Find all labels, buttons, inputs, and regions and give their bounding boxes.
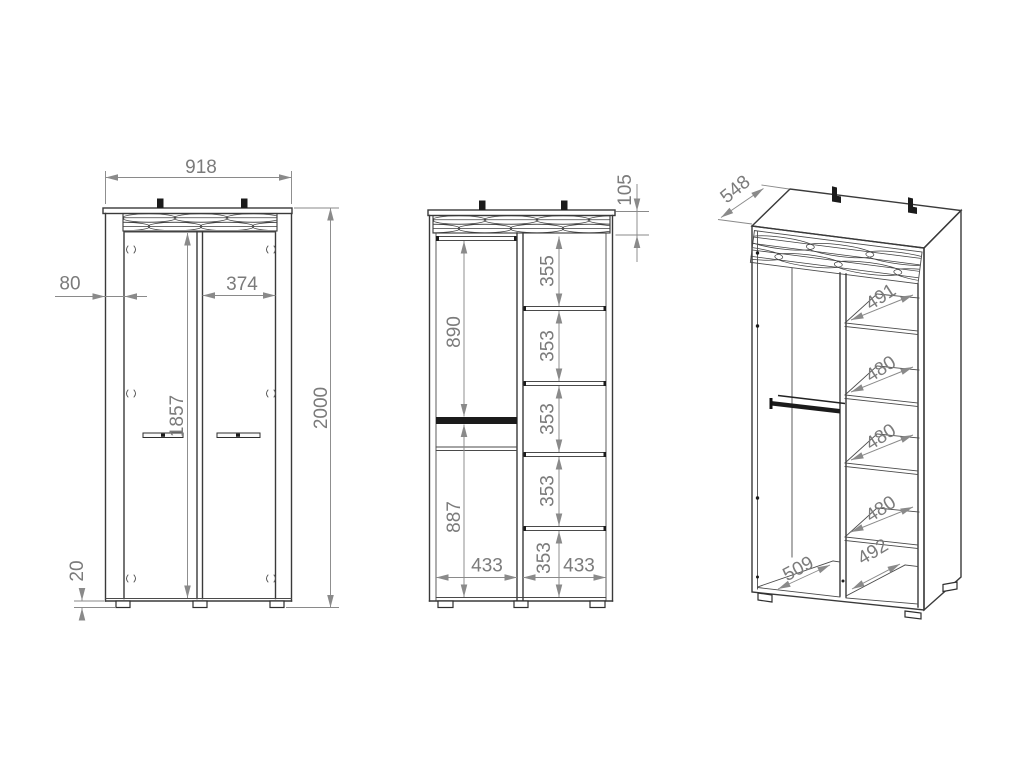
- dim-overall-height: 2000: [311, 387, 332, 429]
- wall-bracket-icon: [157, 199, 164, 209]
- dim-shelf-gap-1: 355: [538, 255, 559, 287]
- technical-drawing-page: 918 80 374 1857 2000 20: [0, 0, 1017, 763]
- wall-bracket-icon: [561, 201, 568, 211]
- plinth-foot: [193, 601, 207, 608]
- wall-bracket-icon: [479, 201, 486, 211]
- dim-door-width: 374: [226, 274, 258, 295]
- plinth-foot: [758, 593, 772, 602]
- dim-shelf-gap-5: 353: [534, 542, 555, 574]
- dim-hanging-section: 890: [444, 316, 465, 348]
- dim-door-height: 1857: [167, 395, 188, 437]
- door-handle-right: [217, 433, 260, 438]
- plinth-foot: [270, 601, 284, 608]
- shelf-pin: [842, 580, 845, 583]
- dim-shelf-gap-3: 353: [538, 403, 559, 435]
- plinth-foot: [514, 601, 528, 608]
- plinth-foot: [438, 601, 453, 608]
- page-background: [0, 0, 1017, 763]
- dim-lower-section: 887: [444, 501, 465, 533]
- dim-side-offset: 80: [59, 274, 80, 295]
- dim-plinth-height: 20: [67, 560, 88, 581]
- shelf-pin: [756, 576, 759, 579]
- dim-strip-height: 105: [615, 174, 636, 206]
- plinth-foot: [116, 601, 130, 608]
- plinth-foot: [905, 611, 921, 619]
- dim-shelf-gap-2: 353: [538, 330, 559, 362]
- plinth-foot: [590, 601, 605, 608]
- dim-left-compartment-width: 433: [471, 556, 503, 577]
- hinge-pin: [756, 251, 759, 254]
- dim-right-compartment-width: 433: [563, 556, 595, 577]
- wardrobe-technical-drawing: 918 80 374 1857 2000 20: [0, 0, 1017, 763]
- hinge-pin: [756, 496, 759, 499]
- wall-bracket-icon: [241, 199, 248, 209]
- dim-shelf-gap-4: 353: [538, 475, 559, 507]
- hinge-pin: [756, 324, 759, 327]
- hanging-rail: [436, 417, 517, 424]
- dim-overall-width: 918: [185, 157, 217, 178]
